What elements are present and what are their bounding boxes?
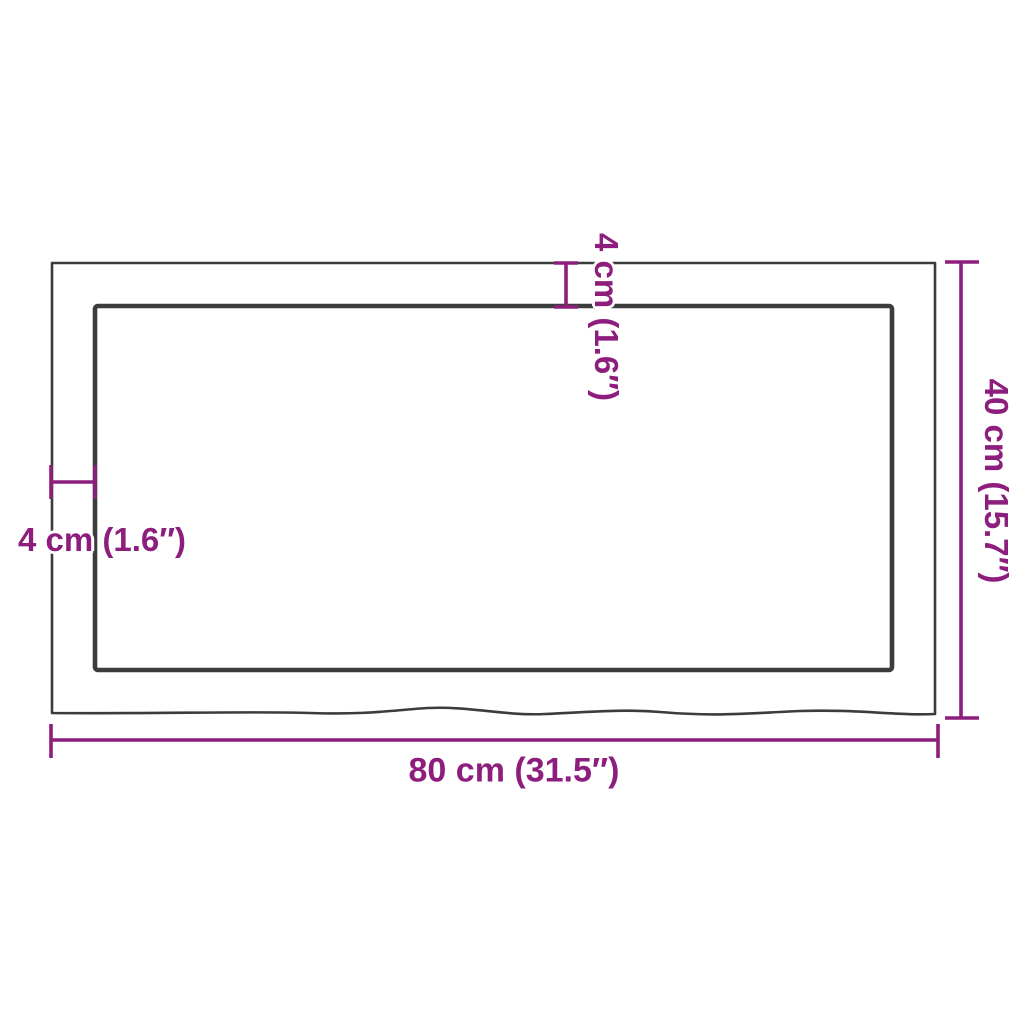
- board-inner-outline: [95, 306, 892, 670]
- dimension-diagram: 80 cm (31.5″) 40 cm (15.7″) 4 cm (1.6″) …: [0, 0, 1024, 1024]
- width-dimension-label: 80 cm (31.5″): [409, 752, 620, 791]
- height-dimension: [945, 262, 979, 718]
- thickness-dimension-top: [554, 263, 578, 307]
- thickness-dimension-left: [51, 465, 95, 499]
- diagram-canvas: [0, 0, 1024, 1024]
- board-outer-outline: [52, 263, 935, 714]
- height-dimension-label: 40 cm (15.7″): [977, 379, 1015, 584]
- thickness-top-label: 4 cm (1.6″): [587, 233, 625, 401]
- thickness-left-label: 4 cm (1.6″): [18, 521, 186, 559]
